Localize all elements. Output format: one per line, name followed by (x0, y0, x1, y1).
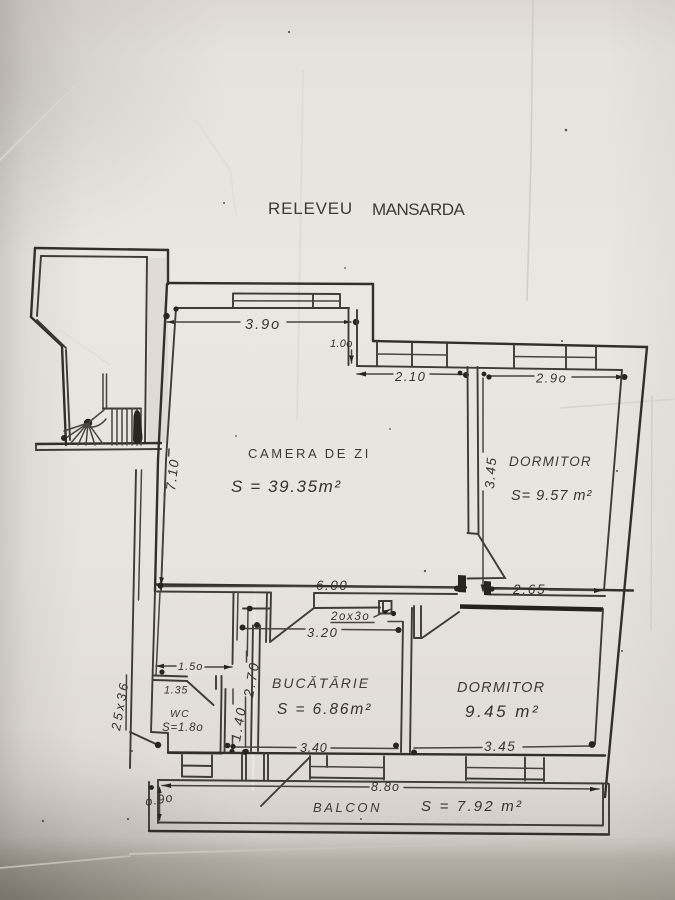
svg-text:S = 7.92 m²: S = 7.92 m² (421, 798, 523, 815)
svg-text:3.45: 3.45 (482, 456, 499, 489)
svg-text:DORMITOR: DORMITOR (457, 680, 545, 696)
svg-text:3.20: 3.20 (307, 625, 338, 640)
svg-text:WC: WC (170, 708, 190, 720)
svg-text:9.45 m²: 9.45 m² (465, 702, 540, 721)
svg-text:1.35: 1.35 (164, 685, 188, 697)
svg-text:CAMERA DE ZI: CAMERA DE ZI (248, 446, 371, 461)
svg-text:1.5o: 1.5o (178, 661, 203, 673)
svg-text:S=1.8o: S=1.8o (162, 722, 204, 734)
svg-text:2.10: 2.10 (394, 369, 426, 384)
svg-text:DORMITOR: DORMITOR (509, 454, 592, 469)
svg-text:2ox3o: 2ox3o (330, 611, 370, 623)
svg-text:RELEVEU: RELEVEU (268, 199, 353, 218)
svg-text:S = 39.35m²: S = 39.35m² (231, 477, 342, 496)
svg-text:2.9o: 2.9o (535, 371, 567, 386)
svg-text:6.00: 6.00 (316, 578, 348, 593)
svg-text:MANSARDA: MANSARDA (372, 200, 466, 219)
svg-text:1.0o: 1.0o (330, 338, 353, 350)
svg-text:S = 6.86m²: S = 6.86m² (277, 701, 372, 718)
svg-text:3.9o: 3.9o (245, 317, 281, 333)
svg-text:8.8o: 8.8o (371, 780, 400, 794)
svg-text:S= 9.57 m²: S= 9.57 m² (511, 488, 592, 504)
svg-text:BALCON: BALCON (313, 800, 382, 815)
svg-text:2.65: 2.65 (512, 582, 546, 597)
svg-text:3.40: 3.40 (300, 741, 328, 755)
svg-text:BUCĂTĂRIE: BUCĂTĂRIE (272, 675, 370, 691)
svg-text:3.45: 3.45 (484, 739, 516, 754)
